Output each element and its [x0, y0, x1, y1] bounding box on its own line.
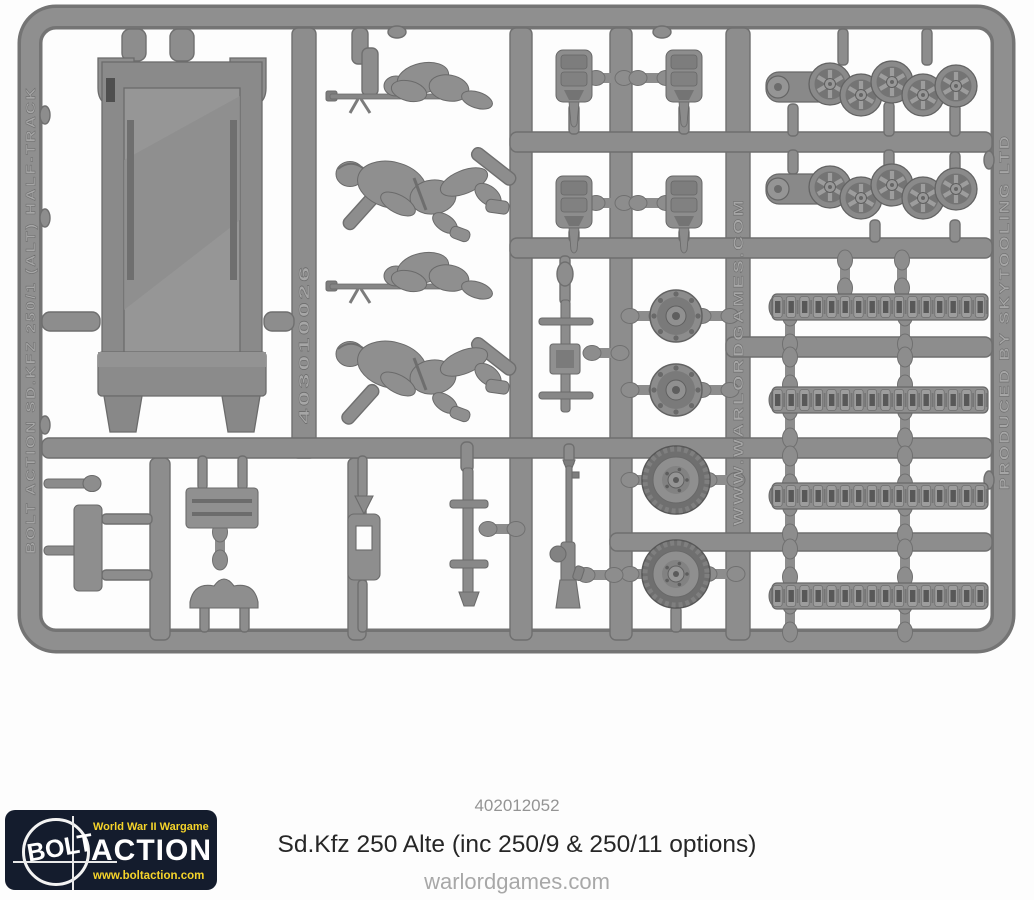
marking-producer: PRODUCED BY SKYTOOLING LTD [997, 134, 1012, 490]
product-photo: BOLT ACTION SD.KFZ 250/1 (ALT) HALF-TRAC… [0, 0, 1034, 900]
marking-part-number: 403010026 [296, 264, 313, 424]
marking-left: BOLT ACTION SD.KFZ 250/1 (ALT) HALF-TRAC… [24, 86, 38, 554]
bolt-action-logo: BOLT World War II Wargame ACTION www.bol… [5, 810, 217, 890]
hull-tub-part [98, 58, 266, 432]
logo-url: www.boltaction.com [93, 870, 204, 882]
mg-gunner-figure-2 [326, 248, 495, 303]
logo-word-action: ACTION [91, 834, 212, 868]
front-tires [642, 446, 710, 608]
mg-gunner-figure-1 [326, 58, 495, 113]
stowage-panel [186, 488, 258, 528]
logo-tagline: World War II Wargame [93, 821, 209, 833]
seat [190, 579, 258, 608]
sprue-photo: BOLT ACTION SD.KFZ 250/1 (ALT) HALF-TRAC… [0, 0, 1034, 775]
mg34-machine-gun [550, 460, 585, 608]
marking-website: WWW.WARLORDGAMES.COM [731, 198, 746, 526]
drive-sprockets [650, 290, 702, 416]
side-plate [74, 505, 102, 591]
mg-pedestal-mount [450, 468, 488, 606]
